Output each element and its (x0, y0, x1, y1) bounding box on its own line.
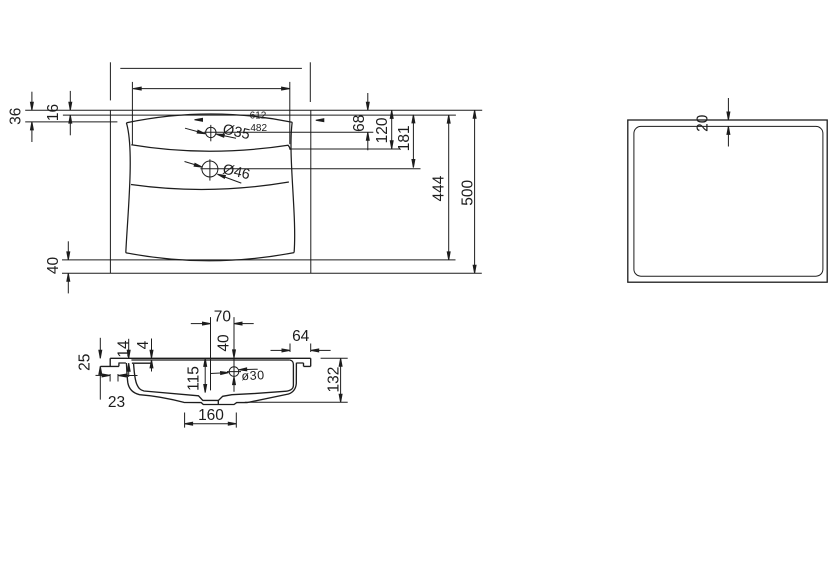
svg-text:16: 16 (45, 104, 62, 121)
svg-text:Ø35: Ø35 (221, 122, 251, 144)
svg-text:160: 160 (198, 407, 224, 424)
svg-text:444: 444 (431, 175, 448, 201)
svg-text:23: 23 (108, 394, 125, 411)
svg-text:4: 4 (135, 340, 152, 349)
svg-text:36: 36 (7, 108, 24, 125)
svg-text:115: 115 (185, 366, 202, 391)
svg-text:25: 25 (76, 354, 93, 371)
svg-text:482: 482 (250, 123, 267, 134)
svg-text:20: 20 (694, 114, 711, 132)
svg-text:ø30: ø30 (241, 368, 265, 383)
svg-text:40: 40 (45, 257, 62, 275)
svg-text:70: 70 (214, 309, 232, 326)
svg-text:181: 181 (396, 125, 413, 151)
svg-text:64: 64 (292, 328, 310, 345)
svg-text:120: 120 (374, 117, 391, 143)
svg-text:68: 68 (351, 115, 368, 132)
svg-text:132: 132 (325, 367, 342, 393)
svg-text:14: 14 (115, 340, 132, 358)
svg-text:Ø46: Ø46 (221, 162, 251, 184)
svg-text:40: 40 (215, 334, 232, 352)
svg-text:500: 500 (460, 179, 477, 205)
svg-text:612: 612 (250, 110, 267, 121)
